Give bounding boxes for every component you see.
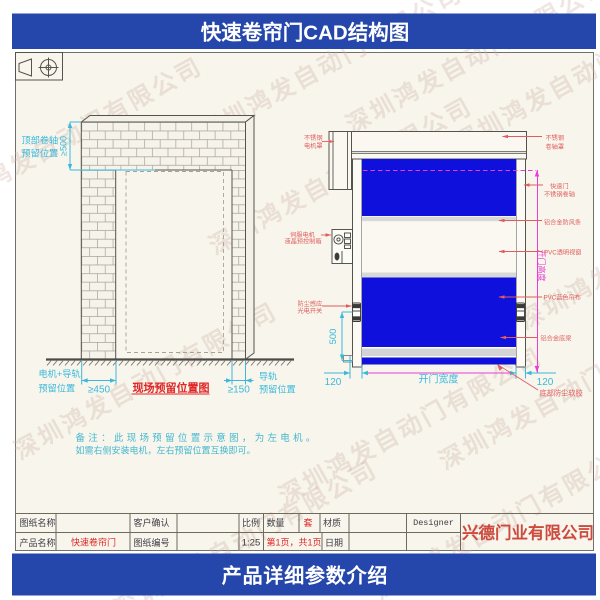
svg-text:图纸名称: 图纸名称 bbox=[20, 517, 56, 528]
svg-text:PVC透明视窗: PVC透明视窗 bbox=[544, 249, 581, 257]
svg-text:快速门: 快速门 bbox=[550, 183, 569, 191]
svg-text:预留位置: 预留位置 bbox=[22, 148, 59, 159]
svg-text:现场预留位置图: 现场预留位置图 bbox=[133, 381, 210, 395]
svg-text:Designer: Designer bbox=[413, 518, 454, 528]
svg-text:第1页，共1页: 第1页，共1页 bbox=[267, 537, 322, 548]
svg-text:电机罩: 电机罩 bbox=[304, 142, 323, 150]
svg-text:预留位置: 预留位置 bbox=[39, 383, 76, 394]
svg-text:液晶预控制箱: 液晶预控制箱 bbox=[284, 238, 321, 246]
svg-text:防尘感应: 防尘感应 bbox=[298, 300, 323, 308]
svg-text:客户确认: 客户确认 bbox=[134, 517, 170, 528]
svg-text:底部防尘软胶: 底部防尘软胶 bbox=[540, 389, 583, 398]
svg-text:快速卷帘门: 快速卷帘门 bbox=[71, 537, 116, 548]
svg-text:产品名称: 产品名称 bbox=[20, 537, 56, 548]
svg-text:套: 套 bbox=[304, 517, 313, 528]
svg-text:数量: 数量 bbox=[267, 517, 285, 528]
svg-text:不锈钢: 不锈钢 bbox=[304, 134, 323, 142]
svg-text:预留位置: 预留位置 bbox=[259, 384, 296, 395]
svg-text:光电开关: 光电开关 bbox=[298, 307, 323, 315]
svg-text:顶部卷轴: 顶部卷轴 bbox=[22, 135, 59, 146]
svg-text:铝合金底梁: 铝合金底梁 bbox=[541, 335, 572, 343]
svg-text:1:25: 1:25 bbox=[242, 538, 261, 549]
svg-text:卷轴罩: 卷轴罩 bbox=[546, 143, 565, 151]
svg-text:电机+导轨: 电机+导轨 bbox=[39, 368, 81, 379]
svg-text:产品详细参数介绍: 产品详细参数介绍 bbox=[222, 564, 388, 588]
svg-text:≥500: ≥500 bbox=[59, 136, 69, 156]
svg-text:材质: 材质 bbox=[323, 517, 341, 528]
svg-text:不锈钢卷轴: 不锈钢卷轴 bbox=[544, 191, 575, 199]
svg-text:日期: 日期 bbox=[325, 538, 343, 548]
svg-text:120: 120 bbox=[325, 377, 342, 388]
svg-text:图纸编号: 图纸编号 bbox=[134, 537, 170, 548]
svg-text:≥150: ≥150 bbox=[228, 385, 251, 396]
svg-text:≥450: ≥450 bbox=[88, 385, 111, 396]
svg-text:PVC蓝色帘布: PVC蓝色帘布 bbox=[544, 294, 581, 302]
svg-text:开门宽度: 开门宽度 bbox=[419, 373, 459, 386]
svg-text:120: 120 bbox=[537, 377, 554, 388]
svg-text:备注：此现场预留位置示意图，为左电机。: 备注：此现场预留位置示意图，为左电机。 bbox=[76, 432, 319, 444]
svg-text:比例: 比例 bbox=[242, 517, 260, 528]
svg-text:快速卷帘门CAD结构图: 快速卷帘门CAD结构图 bbox=[201, 21, 409, 45]
svg-text:导轨: 导轨 bbox=[259, 371, 277, 382]
svg-text:不锈钢: 不锈钢 bbox=[546, 134, 565, 142]
svg-text:如需右侧安装电机，左右预留位置互换即可。: 如需右侧安装电机，左右预留位置互换即可。 bbox=[76, 445, 256, 456]
svg-text:兴德门业有限公司: 兴德门业有限公司 bbox=[462, 523, 594, 543]
svg-text:铝合金防风条: 铝合金防风条 bbox=[544, 219, 581, 227]
svg-text:500: 500 bbox=[328, 329, 339, 345]
